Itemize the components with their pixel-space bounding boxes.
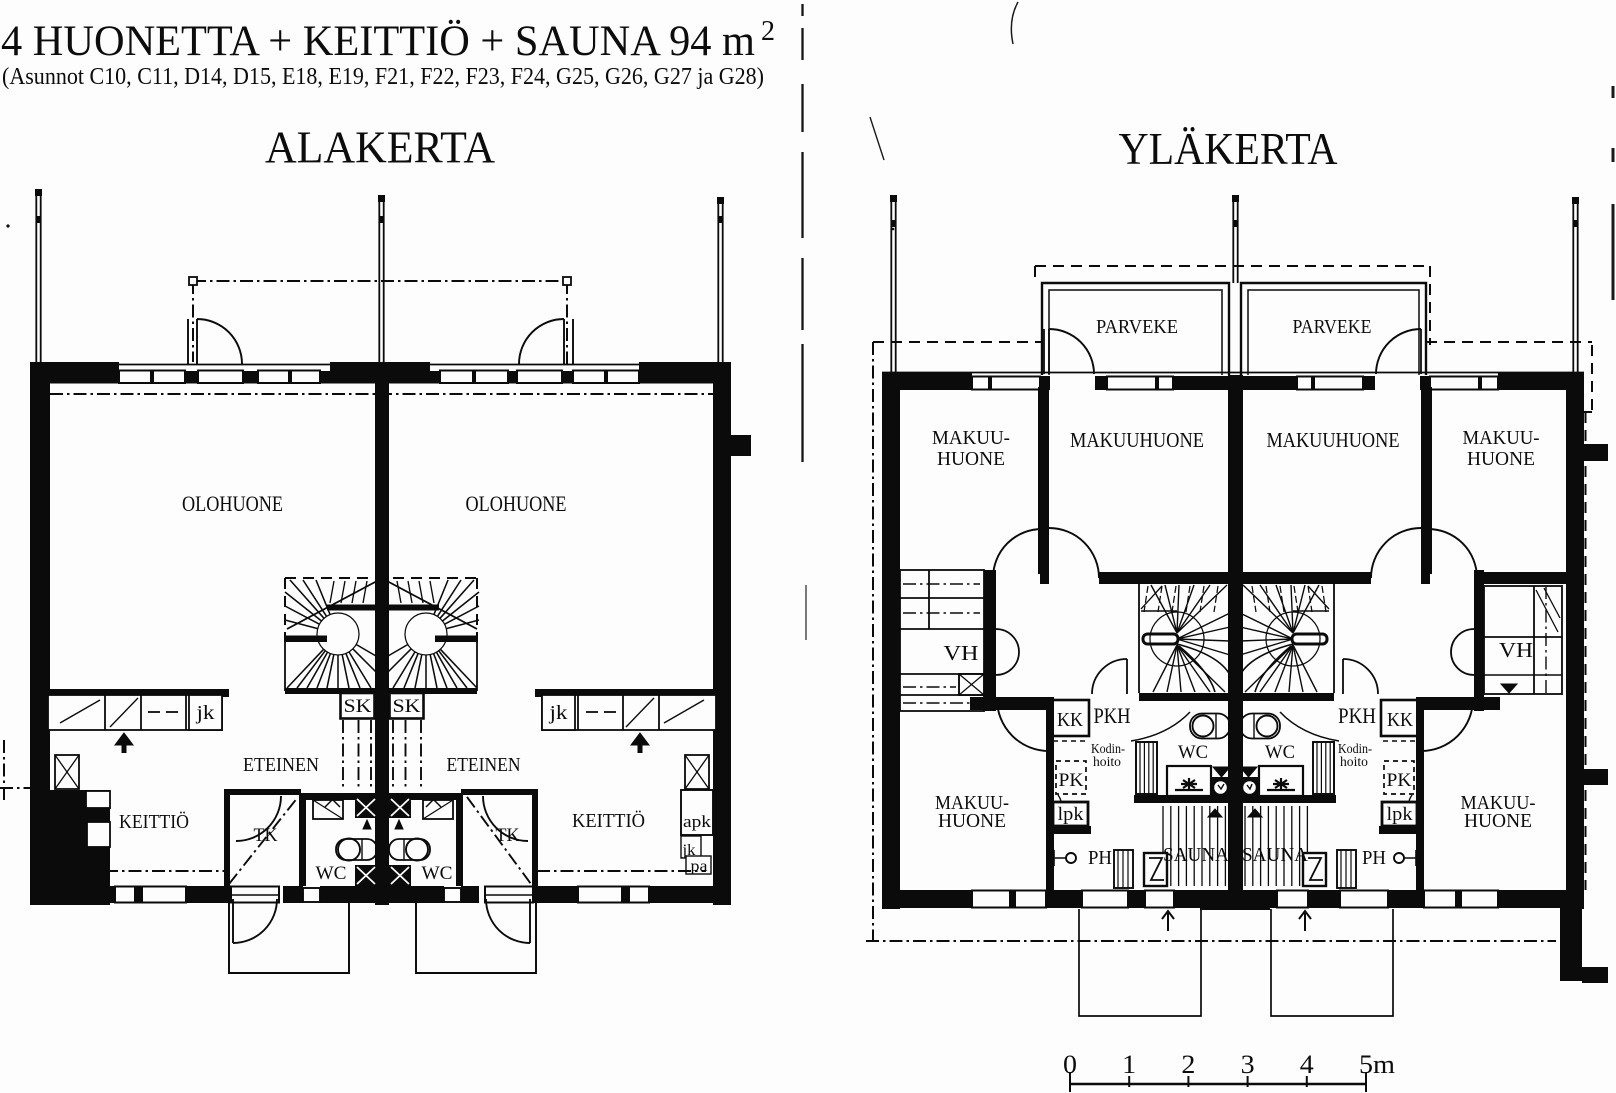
svg-text:PK: PK bbox=[1059, 770, 1084, 791]
svg-text:hoito: hoito bbox=[1340, 754, 1368, 769]
svg-text:OLOHUONE: OLOHUONE bbox=[466, 491, 567, 516]
svg-text:jk: jk bbox=[195, 702, 214, 724]
svg-text:HUONE: HUONE bbox=[1464, 810, 1532, 832]
svg-text:PARVEKE: PARVEKE bbox=[1096, 316, 1178, 338]
svg-text:VH: VH bbox=[944, 641, 979, 665]
svg-text:HUONE: HUONE bbox=[938, 810, 1006, 832]
svg-text:(Asunnot C10, C11, D14, D15, E: (Asunnot C10, C11, D14, D15, E18, E19, F… bbox=[2, 63, 764, 90]
svg-text:2: 2 bbox=[761, 16, 775, 47]
svg-text:WC: WC bbox=[422, 863, 453, 884]
svg-text:KEITTIÖ: KEITTIÖ bbox=[572, 809, 645, 832]
svg-text:MAKUU-: MAKUU- bbox=[932, 427, 1010, 449]
svg-text:2: 2 bbox=[1181, 1050, 1195, 1079]
svg-text:PH: PH bbox=[1362, 847, 1386, 869]
svg-text:SAUNA: SAUNA bbox=[1163, 844, 1230, 866]
svg-text:ALAKERTA: ALAKERTA bbox=[265, 123, 495, 173]
svg-text:SK: SK bbox=[393, 696, 421, 717]
svg-text:1: 1 bbox=[1122, 1050, 1136, 1079]
svg-text:m: m bbox=[1373, 1050, 1395, 1079]
svg-text:PH: PH bbox=[1088, 847, 1112, 869]
svg-text:lpk: lpk bbox=[1387, 804, 1414, 825]
svg-text:4 HUONETTA + KEITTIÖ + SAUNA 9: 4 HUONETTA + KEITTIÖ + SAUNA 94 m bbox=[1, 18, 755, 65]
svg-text:lpk: lpk bbox=[1058, 804, 1085, 825]
svg-text:WC: WC bbox=[1178, 742, 1208, 763]
svg-text:MAKUUHUONE: MAKUUHUONE bbox=[1070, 428, 1204, 452]
svg-text:KEITTIÖ: KEITTIÖ bbox=[119, 810, 189, 833]
svg-text:VH: VH bbox=[1499, 638, 1533, 662]
svg-text:3: 3 bbox=[1241, 1050, 1255, 1079]
svg-text:HUONE: HUONE bbox=[1467, 448, 1535, 470]
svg-text:PKH: PKH bbox=[1094, 703, 1131, 728]
svg-text:YLÄKERTA: YLÄKERTA bbox=[1119, 124, 1338, 174]
svg-text:WC: WC bbox=[1265, 742, 1295, 763]
svg-text:MAKUUHUONE: MAKUUHUONE bbox=[1267, 428, 1400, 452]
svg-text:PARVEKE: PARVEKE bbox=[1293, 316, 1372, 338]
svg-text:KK: KK bbox=[1387, 709, 1413, 731]
svg-text:SK: SK bbox=[344, 696, 372, 717]
svg-text:hoito: hoito bbox=[1093, 754, 1121, 769]
svg-text:apk: apk bbox=[683, 812, 712, 831]
svg-text:MAKUU-: MAKUU- bbox=[1463, 427, 1540, 449]
svg-text:jk: jk bbox=[548, 702, 567, 724]
svg-text:WC: WC bbox=[316, 863, 347, 884]
svg-text:SAUNA: SAUNA bbox=[1242, 844, 1309, 866]
svg-text:HUONE: HUONE bbox=[937, 448, 1005, 470]
svg-text:KK: KK bbox=[1057, 709, 1083, 731]
svg-text:PKH: PKH bbox=[1338, 703, 1376, 728]
svg-text:ETEINEN: ETEINEN bbox=[243, 754, 319, 776]
svg-text:OLOHUONE: OLOHUONE bbox=[182, 491, 283, 516]
svg-text:4: 4 bbox=[1300, 1050, 1314, 1079]
svg-text:pa: pa bbox=[691, 858, 708, 875]
svg-text:jk: jk bbox=[681, 842, 695, 859]
svg-text:PK: PK bbox=[1387, 770, 1412, 791]
svg-text:ETEINEN: ETEINEN bbox=[447, 754, 521, 776]
